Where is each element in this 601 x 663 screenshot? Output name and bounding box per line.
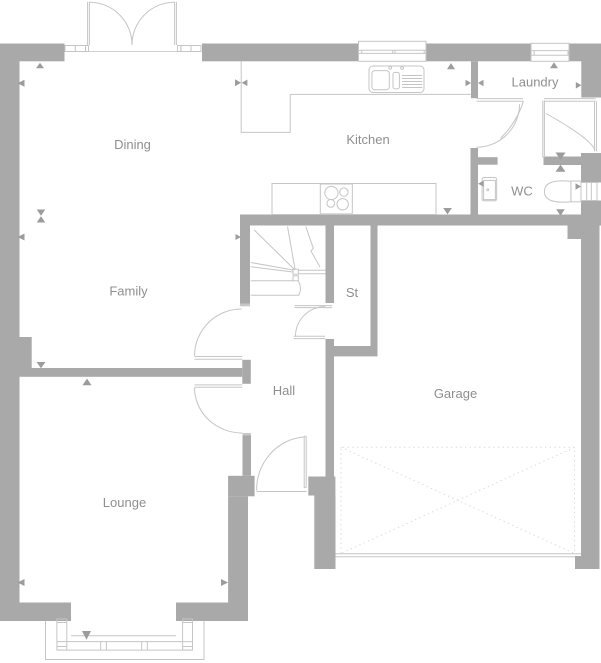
svg-text:WC: WC [511,184,533,199]
svg-text:Family: Family [109,284,148,299]
svg-text:Dining: Dining [114,137,151,152]
svg-text:Garage: Garage [434,386,477,401]
svg-text:Hall: Hall [273,383,296,398]
svg-text:St: St [346,285,359,300]
svg-text:Lounge: Lounge [103,495,146,510]
svg-text:Kitchen: Kitchen [346,132,389,147]
svg-text:Laundry: Laundry [512,75,559,90]
